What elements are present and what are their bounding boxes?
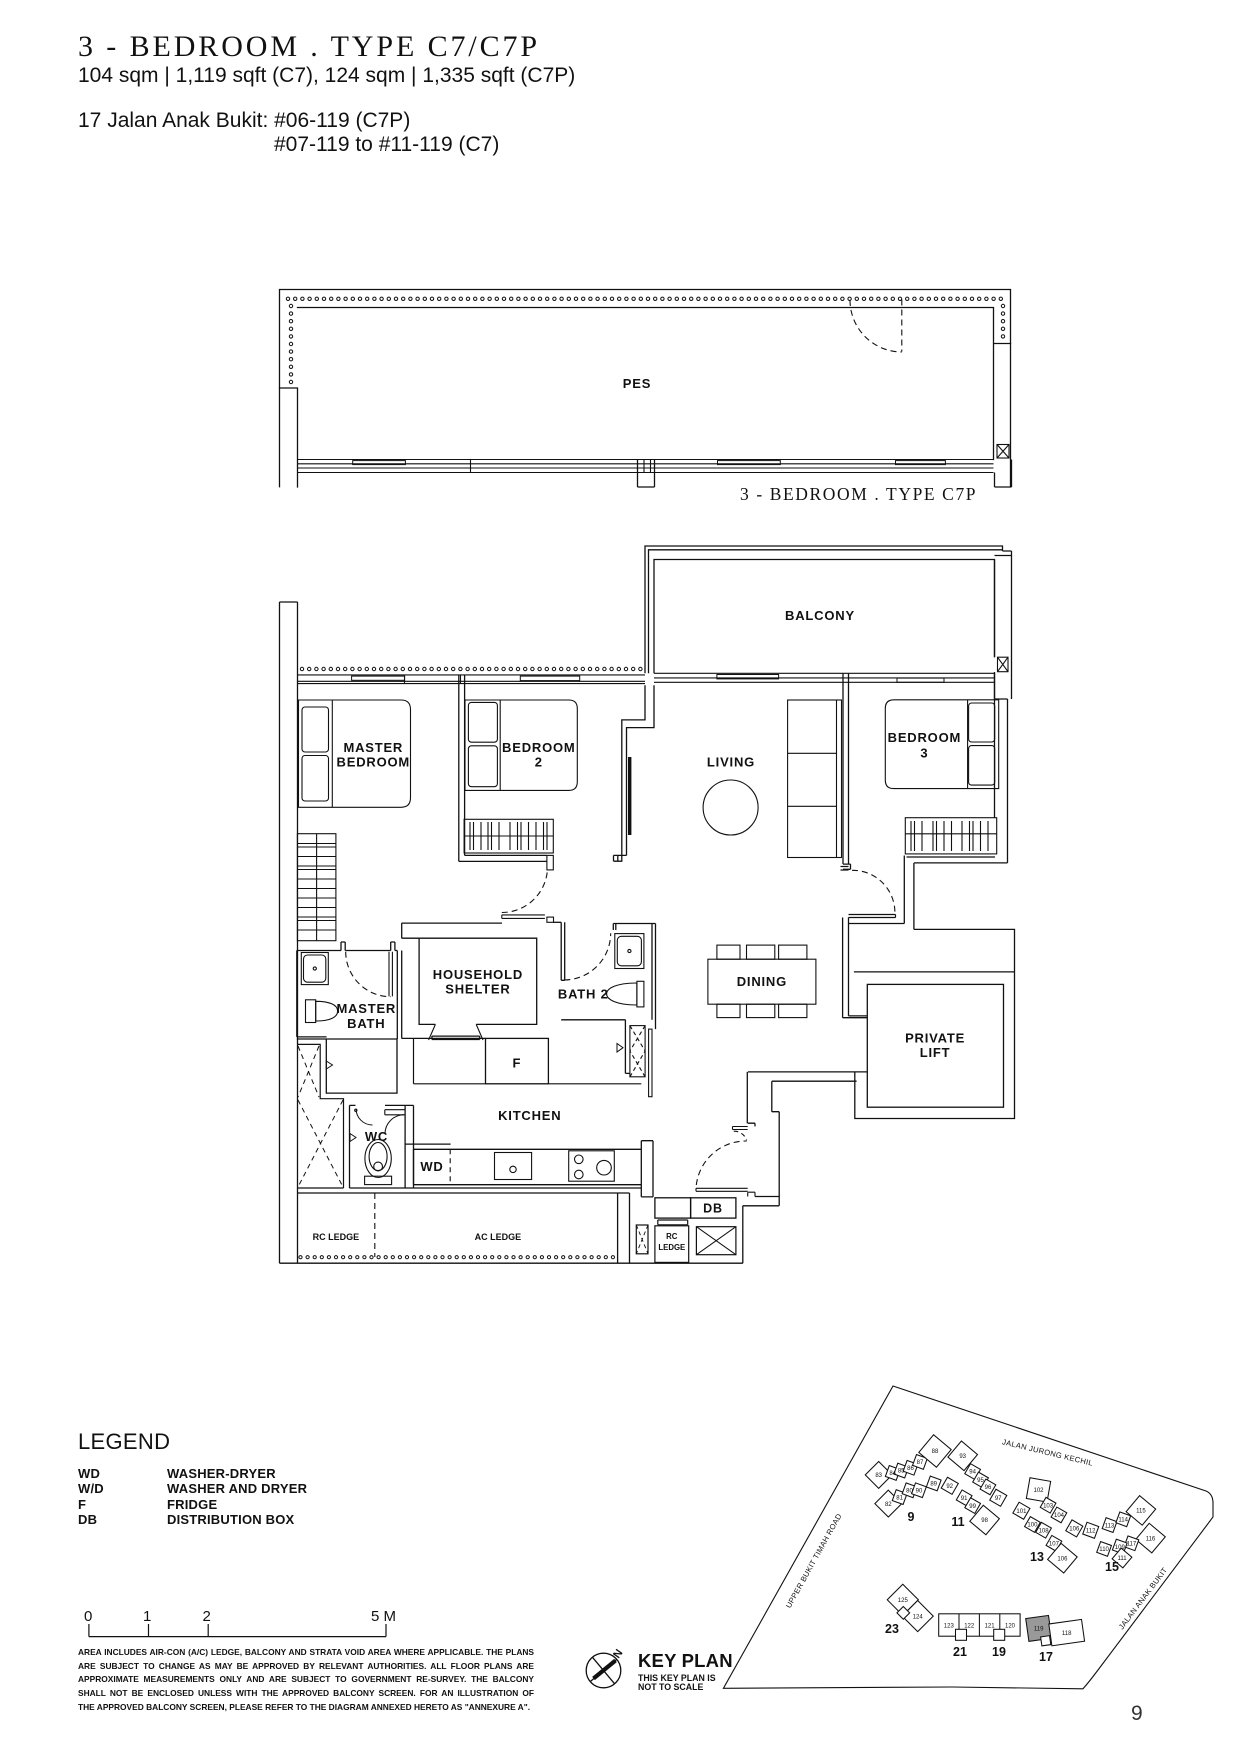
svg-text:RC LEDGE: RC LEDGE — [313, 1232, 360, 1242]
svg-text:17: 17 — [1039, 1650, 1053, 1664]
svg-text:98: 98 — [981, 1518, 988, 1524]
svg-text:BEDROOM: BEDROOM — [337, 755, 411, 770]
svg-text:9: 9 — [1131, 1702, 1143, 1725]
svg-text:103: 103 — [1043, 1504, 1054, 1510]
svg-text:109: 109 — [1115, 1545, 1126, 1551]
svg-text:2: 2 — [535, 755, 543, 770]
svg-text:1: 1 — [143, 1608, 151, 1625]
svg-text:89: 89 — [930, 1482, 937, 1488]
svg-text:117: 117 — [1127, 1541, 1137, 1547]
svg-text:BALCONY: BALCONY — [785, 608, 855, 623]
svg-text:119: 119 — [1034, 1627, 1044, 1633]
svg-text:DB: DB — [703, 1202, 723, 1216]
svg-text:9: 9 — [908, 1510, 915, 1524]
svg-text:MASTER: MASTER — [343, 740, 403, 755]
svg-text:113: 113 — [1105, 1523, 1115, 1529]
svg-text:100: 100 — [1027, 1523, 1038, 1529]
svg-text:BATH: BATH — [347, 1016, 385, 1031]
svg-text:LIVING: LIVING — [707, 755, 755, 770]
svg-text:BEDROOM: BEDROOM — [502, 740, 576, 755]
svg-text:MASTER: MASTER — [336, 1001, 396, 1016]
svg-text:BEDROOM: BEDROOM — [888, 730, 962, 745]
svg-text:95: 95 — [977, 1478, 984, 1484]
svg-text:N: N — [611, 1647, 625, 1660]
svg-text:93: 93 — [959, 1454, 966, 1460]
svg-text:85: 85 — [898, 1469, 905, 1475]
svg-text:104: 104 — [1054, 1513, 1065, 1519]
svg-text:125: 125 — [898, 1598, 909, 1604]
svg-text:WD: WD — [420, 1159, 443, 1174]
svg-text:83: 83 — [875, 1473, 882, 1479]
svg-text:DINING: DINING — [737, 974, 787, 989]
svg-text:2: 2 — [203, 1608, 211, 1625]
svg-text:106: 106 — [1069, 1527, 1080, 1533]
svg-text:121: 121 — [985, 1623, 996, 1629]
svg-text:91: 91 — [961, 1496, 968, 1502]
svg-text:JALAN ANAK BUKIT: JALAN ANAK BUKIT — [1117, 1566, 1170, 1632]
svg-text:0: 0 — [84, 1608, 92, 1625]
svg-text:87: 87 — [917, 1460, 924, 1466]
svg-text:102: 102 — [1033, 1488, 1044, 1494]
svg-text:110: 110 — [1099, 1547, 1109, 1553]
svg-text:116: 116 — [1146, 1536, 1156, 1542]
svg-text:81: 81 — [896, 1495, 903, 1501]
svg-text:3: 3 — [920, 746, 928, 761]
svg-text:PRIVATE: PRIVATE — [905, 1031, 965, 1046]
svg-text:KITCHEN: KITCHEN — [498, 1108, 561, 1123]
svg-text:108: 108 — [1039, 1528, 1050, 1534]
svg-text:96: 96 — [985, 1485, 992, 1491]
svg-text:88: 88 — [932, 1449, 939, 1455]
svg-text:BATH 2: BATH 2 — [558, 987, 609, 1002]
svg-text:112: 112 — [1086, 1528, 1096, 1534]
svg-text:PES: PES — [623, 376, 651, 391]
svg-text:F: F — [513, 1056, 522, 1071]
svg-text:101: 101 — [1016, 1509, 1027, 1515]
svg-text:107: 107 — [1049, 1541, 1060, 1547]
svg-text:15: 15 — [1105, 1560, 1119, 1574]
svg-text:84: 84 — [889, 1471, 896, 1477]
svg-text:21: 21 — [953, 1645, 967, 1659]
svg-text:11: 11 — [951, 1515, 964, 1529]
svg-text:LIFT: LIFT — [920, 1045, 951, 1060]
svg-text:122: 122 — [964, 1623, 975, 1629]
svg-text:19: 19 — [992, 1645, 1006, 1659]
svg-text:LEDGE: LEDGE — [658, 1243, 685, 1252]
svg-text:80: 80 — [906, 1489, 913, 1495]
svg-text:AC LEDGE: AC LEDGE — [475, 1232, 522, 1242]
svg-text:82: 82 — [885, 1502, 892, 1508]
svg-text:118: 118 — [1062, 1631, 1072, 1637]
svg-text:WC: WC — [365, 1129, 388, 1144]
svg-text:13: 13 — [1030, 1550, 1044, 1564]
svg-text:90: 90 — [916, 1489, 923, 1495]
svg-text:23: 23 — [885, 1622, 899, 1636]
svg-text:124: 124 — [913, 1614, 924, 1620]
svg-text:97: 97 — [995, 1496, 1002, 1502]
svg-text:99: 99 — [969, 1504, 976, 1510]
svg-text:120: 120 — [1005, 1623, 1016, 1629]
svg-text:3 - BEDROOM . TYPE C7P: 3 - BEDROOM . TYPE C7P — [740, 484, 977, 504]
svg-text:106: 106 — [1057, 1556, 1068, 1562]
svg-text:JALAN JURONG KECHIL: JALAN JURONG KECHIL — [1001, 1437, 1094, 1467]
svg-text:5 M: 5 M — [371, 1608, 396, 1625]
svg-text:SHELTER: SHELTER — [445, 982, 510, 997]
svg-text:HOUSEHOLD: HOUSEHOLD — [433, 967, 523, 982]
svg-text:123: 123 — [944, 1623, 955, 1629]
svg-text:92: 92 — [946, 1484, 953, 1490]
svg-text:RC: RC — [666, 1232, 678, 1241]
svg-text:114: 114 — [1118, 1518, 1128, 1524]
svg-text:86: 86 — [907, 1466, 914, 1472]
svg-text:115: 115 — [1136, 1509, 1146, 1515]
svg-text:94: 94 — [969, 1470, 976, 1476]
